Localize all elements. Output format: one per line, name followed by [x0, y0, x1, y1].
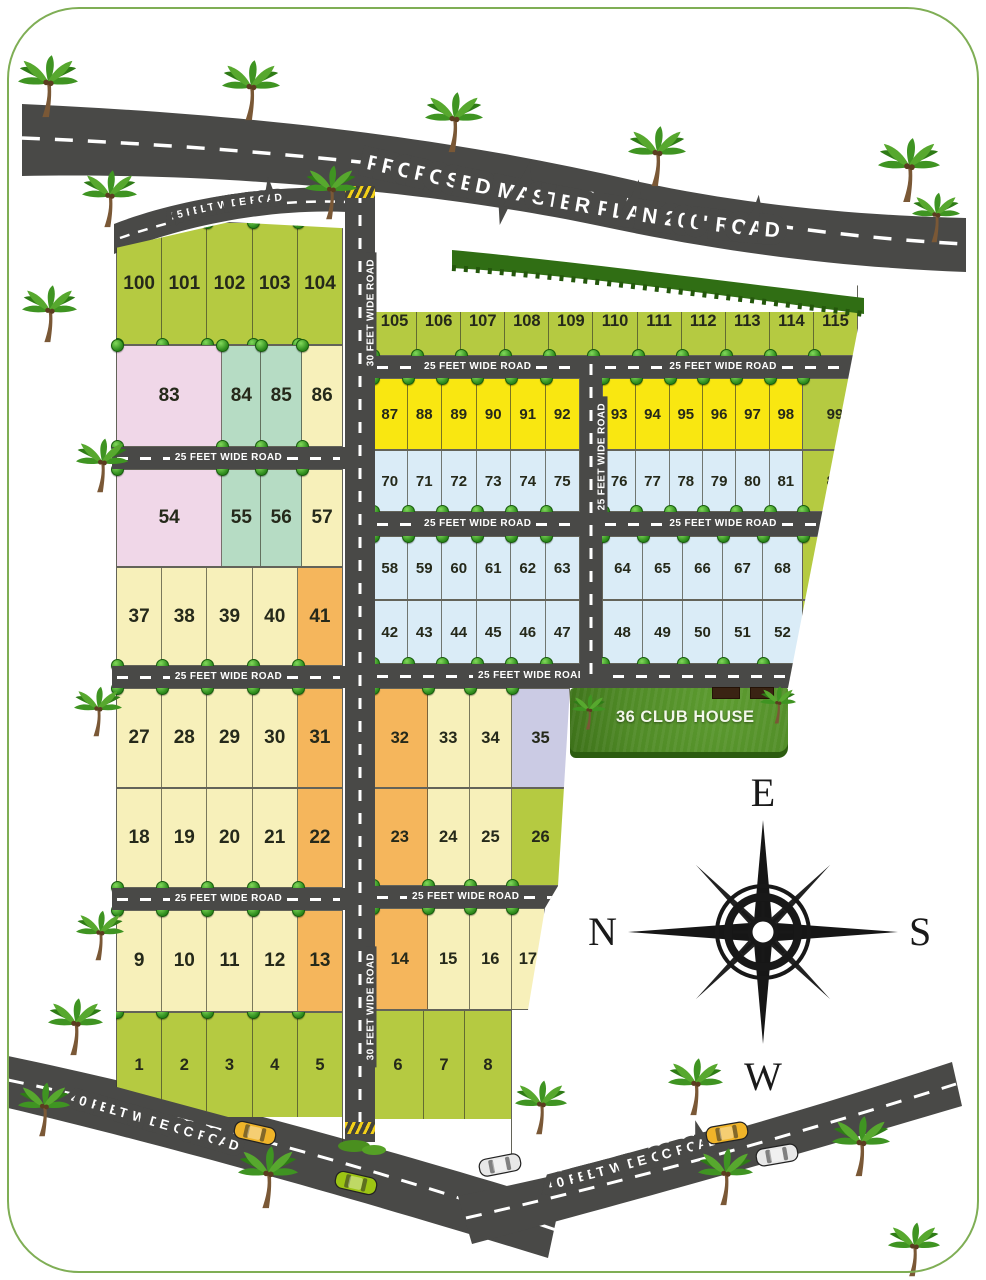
parked-vehicle [712, 687, 740, 699]
plot: 91 [511, 379, 546, 449]
plot-number: 59 [416, 560, 433, 577]
plot: 85 [261, 346, 302, 446]
plot-number: 68 [774, 560, 791, 577]
plot: 50 [683, 601, 723, 663]
plot-number: 80 [744, 473, 761, 490]
plot-number: 102 [214, 273, 246, 295]
plot-number: 27 [129, 727, 150, 749]
plot-number: 8 [483, 1056, 492, 1075]
road-dash [287, 676, 340, 679]
plot-row-100-104: 100101102103104 [116, 222, 343, 345]
plot: 98 [770, 379, 802, 449]
plot-number: 44 [450, 624, 467, 641]
plot: 109 [549, 312, 593, 355]
plot-number: 49 [654, 624, 671, 641]
road-25ft-left-3: 25 FEET WIDE ROAD [112, 888, 345, 910]
plot: 60 [442, 537, 477, 599]
plot-row-70-82: 707172737475 767778798081 82 [372, 450, 868, 512]
plot: 78 [670, 451, 703, 511]
plot: 7 [424, 1011, 465, 1119]
plot-number: 57 [312, 507, 333, 529]
plot: 108 [505, 312, 549, 355]
road-dash [377, 523, 419, 526]
plot-number: 58 [381, 560, 398, 577]
plot-number: 21 [264, 827, 285, 849]
plot-number: 91 [519, 406, 536, 423]
road-25ft-right-mid: 25 FEET WIDE ROAD 25 FEET WIDE ROAD [372, 512, 858, 536]
plot-number: 84 [231, 385, 252, 407]
plot: 79 [703, 451, 736, 511]
plot: 105 [373, 312, 417, 355]
plot: 106 [417, 312, 461, 355]
plot-number: 2 [180, 1056, 189, 1075]
plot: 47 [546, 601, 580, 663]
plot: 93 [603, 379, 636, 449]
plot-number: 103 [259, 273, 291, 295]
plot-number: 87 [381, 406, 398, 423]
plot-row-14-17: 14151617 [372, 908, 545, 1010]
plot-number: 25 [481, 828, 499, 847]
plot: 30 [253, 689, 298, 787]
plot-number: 94 [644, 406, 661, 423]
plot: 88 [408, 379, 443, 449]
plot-number: 24 [439, 828, 457, 847]
plot-number: 18 [129, 827, 150, 849]
plot-number: 5 [315, 1056, 324, 1075]
plot: 110 [593, 312, 637, 355]
plot: 81 [770, 451, 802, 511]
plot-number: 46 [519, 624, 536, 641]
plot-number: 67 [734, 560, 751, 577]
plot-number: 7 [439, 1056, 448, 1075]
plot: 5 [298, 1013, 342, 1117]
plot-number: 60 [450, 560, 467, 577]
plot-number: 106 [425, 312, 453, 331]
plot: 14 [373, 909, 428, 1009]
plot-number: 56 [271, 507, 292, 529]
plot-number: 6 [393, 1056, 402, 1075]
road-30ft-vertical: 30 FEET WIDE ROAD 30 FEET WIDE ROAD [345, 184, 375, 1142]
plot: 27 [117, 689, 162, 787]
plot-number: 71 [416, 473, 433, 490]
road-end-hatch [345, 186, 375, 198]
plot-row-6-8: 678 [372, 1010, 512, 1158]
plot-number: 77 [644, 473, 661, 490]
plot-number: 37 [129, 606, 150, 628]
plot-number: 47 [554, 624, 571, 641]
plot-number: 93 [611, 406, 628, 423]
plot-number: 115 [822, 312, 849, 331]
plot-number: 111 [646, 312, 672, 331]
plot: 44 [442, 601, 477, 663]
plot: 77 [636, 451, 669, 511]
plot: 61 [477, 537, 512, 599]
plot-number: 28 [174, 727, 195, 749]
plot-number: 63 [554, 560, 571, 577]
plot-number: 90 [485, 406, 502, 423]
plot-number: 39 [219, 606, 240, 628]
plot-row-9-13: 910111213 [116, 910, 343, 1012]
plot-number: 86 [312, 385, 333, 407]
plot: 57 [302, 470, 342, 566]
plot: 59 [408, 537, 443, 599]
plot-number: 98 [777, 406, 794, 423]
plot-number: 52 [774, 624, 791, 641]
plot: 102 [207, 223, 252, 344]
road-25ft-left-1: 25 FEET WIDE ROAD [112, 447, 345, 469]
road-label: 25 FEET WIDE ROAD [597, 396, 608, 517]
plot-row-23-26: 23242526 [372, 788, 570, 886]
plot-row-83-86: 83848586 [116, 345, 343, 447]
plot: 45 [477, 601, 512, 663]
plot: 22 [298, 789, 342, 887]
plot-number: 48 [614, 624, 631, 641]
plot-number: 19 [174, 827, 195, 849]
road-label: 25 FEET WIDE ROAD [175, 672, 282, 682]
plot: 63 [546, 537, 580, 599]
plot: 23 [373, 789, 428, 885]
plot-number: 40 [264, 606, 285, 628]
road-label: 30 FEET WIDE ROAD [366, 946, 377, 1067]
plot-number: 35 [531, 729, 549, 748]
plot: 19 [162, 789, 207, 887]
plot: 111 [638, 312, 682, 355]
road-label: 25 FEET WIDE ROAD [424, 362, 531, 372]
plot: 96 [703, 379, 736, 449]
plot-number: 15 [439, 950, 457, 969]
plot: 51 [723, 601, 763, 663]
plot: 64 [603, 537, 643, 599]
plot: 25 [470, 789, 512, 885]
plot-number: 96 [711, 406, 728, 423]
road-dash [117, 457, 170, 460]
plot: 70 [373, 451, 408, 511]
plot-number: 55 [231, 507, 252, 529]
plot-number: 42 [381, 624, 398, 641]
plot: 9 [117, 911, 162, 1011]
plot-number: 108 [513, 312, 541, 331]
plot: 32 [373, 689, 428, 787]
road-dash [287, 457, 340, 460]
plot-number: 11 [219, 950, 239, 972]
plot-number: 3 [225, 1056, 234, 1075]
plot: 67 [723, 537, 763, 599]
plot: 56 [261, 470, 302, 566]
plot-number: 79 [711, 473, 728, 490]
plot-number: 64 [614, 560, 631, 577]
plot-number: 14 [391, 950, 409, 969]
plot: 39 [207, 568, 252, 665]
plot-number: 23 [391, 828, 409, 847]
plot-number: 1 [135, 1056, 144, 1075]
plot-number: 4 [270, 1056, 279, 1075]
plot: 49 [643, 601, 683, 663]
road-25ft-left-2: 25 FEET WIDE ROAD [112, 666, 345, 688]
plot-row-32-35: 32333435 [372, 688, 570, 788]
plot-number: 31 [309, 727, 330, 749]
road-label: 25 FEET WIDE ROAD [669, 362, 776, 372]
plot: 18 [117, 789, 162, 887]
plot-number: 75 [554, 473, 571, 490]
plot-number: 70 [381, 473, 398, 490]
plot: 58 [373, 537, 408, 599]
plot: 48 [603, 601, 643, 663]
site-layout-map: PROPOSED MASTER PLAN 200' ROAD 25 FEET W… [0, 0, 986, 1280]
road-25ft-right-top: 25 FEET WIDE ROAD 25 FEET WIDE ROAD [372, 356, 858, 378]
plot-number: 78 [677, 473, 694, 490]
plot: 13 [298, 911, 342, 1011]
plot-number: 45 [485, 624, 502, 641]
plot-number: 26 [531, 828, 549, 847]
plot: 20 [207, 789, 252, 887]
plot: 41 [298, 568, 342, 665]
plot: 89 [442, 379, 477, 449]
plot-number: 89 [450, 406, 467, 423]
plot-number: 34 [481, 729, 499, 748]
plot: 33 [428, 689, 470, 787]
plot-number: 10 [174, 950, 195, 972]
plot-row-18-22: 1819202122 [116, 788, 343, 888]
plot-number: 72 [450, 473, 467, 490]
road-25ft-vertical: 25 FEET WIDE ROAD [580, 356, 602, 688]
parked-vehicle [750, 687, 774, 699]
plot: 65 [643, 537, 683, 599]
plot: 28 [162, 689, 207, 787]
plot-number: 81 [777, 473, 794, 490]
road-end-hatch [345, 1122, 375, 1134]
club-house: 36 CLUB HOUSE [570, 688, 788, 758]
plot-number: 50 [694, 624, 711, 641]
road-label: 25 FEET WIDE ROAD [412, 892, 519, 902]
plot: 46 [511, 601, 546, 663]
plot: 62 [511, 537, 546, 599]
plot-row-87-99: 878889909192 939495969798 99 [372, 378, 868, 450]
plot-number: 12 [264, 950, 285, 972]
plot-number: 107 [469, 312, 497, 331]
plot: 40 [253, 568, 298, 665]
plot-number: 13 [309, 950, 330, 972]
road-dash [117, 676, 170, 679]
plot: 86 [302, 346, 342, 446]
plot-number: 9 [134, 950, 145, 972]
plot-number: 32 [391, 729, 409, 748]
plot: 55 [222, 470, 261, 566]
plot: 72 [442, 451, 477, 511]
plot: 54 [117, 470, 222, 566]
plot: 34 [470, 689, 512, 787]
plot-row-54-57: 54555657 [116, 469, 343, 567]
plot-number: 110 [602, 312, 629, 331]
plot-number: 43 [416, 624, 433, 641]
plot-row-27-31: 2728293031 [116, 688, 343, 788]
plot-number: 88 [416, 406, 433, 423]
plot: 6 [373, 1011, 424, 1119]
plot: 107 [461, 312, 505, 355]
plot: 95 [670, 379, 703, 449]
plot: 29 [207, 689, 252, 787]
road-label: 25 FEET WIDE ROAD [424, 519, 531, 529]
plot-number: 54 [159, 507, 180, 529]
plot: 31 [298, 689, 342, 787]
plot-number: 83 [159, 385, 180, 407]
plot-number: 22 [309, 827, 330, 849]
plot: 21 [253, 789, 298, 887]
plot-number: 66 [694, 560, 711, 577]
plot: 83 [117, 346, 222, 446]
road-label: 25 FEET WIDE ROAD [175, 894, 282, 904]
road-dash [590, 675, 807, 678]
plot-number: 114 [778, 312, 805, 331]
road-label: 25 FEET WIDE ROAD [478, 671, 585, 681]
road-dash [377, 366, 419, 369]
plot-number: 74 [519, 473, 536, 490]
plot: 37 [117, 568, 162, 665]
plot: 71 [408, 451, 443, 511]
plot-number: 20 [219, 827, 240, 849]
road-25ft-lower: 25 FEET WIDE ROAD [372, 886, 560, 908]
plot: 84 [222, 346, 261, 446]
plot: 113 [726, 312, 770, 355]
club-house-label: 36 CLUB HOUSE [616, 708, 755, 727]
road-dash [782, 366, 853, 369]
plot-number: 62 [519, 560, 536, 577]
plot: 11 [207, 911, 252, 1011]
plot-number: 30 [264, 727, 285, 749]
plot-number: 33 [439, 729, 457, 748]
plot: 35 [512, 689, 569, 787]
plot: 114 [770, 312, 814, 355]
plot: 104 [298, 223, 342, 344]
plot-number: 113 [734, 312, 761, 331]
plot-number: 51 [734, 624, 751, 641]
road-dash [117, 898, 170, 901]
plot-number: 101 [168, 273, 200, 295]
road-label: 25 FEET WIDE ROAD [175, 453, 282, 463]
road-dash [287, 898, 340, 901]
plot: 74 [511, 451, 546, 511]
cc-road-right [458, 1062, 962, 1244]
plot-row-42-53: 424344454647 4849505152 53 [372, 600, 868, 664]
plot-number: 100 [123, 273, 155, 295]
plot: 80 [736, 451, 769, 511]
plot-number: 105 [381, 312, 409, 331]
road-dash [377, 675, 473, 678]
plot-number: 97 [744, 406, 761, 423]
plot: 94 [636, 379, 669, 449]
plot-number: 92 [554, 406, 571, 423]
plot: 73 [477, 451, 512, 511]
plot-row-37-41: 3738394041 [116, 567, 343, 666]
plot-number: 112 [690, 312, 717, 331]
plot-number: 95 [677, 406, 694, 423]
plot: 90 [477, 379, 512, 449]
plot: 92 [546, 379, 580, 449]
road-dash [359, 192, 362, 1134]
plot-number: 16 [481, 950, 499, 969]
plot: 97 [736, 379, 769, 449]
plot: 24 [428, 789, 470, 885]
plot: 4 [253, 1013, 298, 1117]
plot: 8 [465, 1011, 511, 1119]
plot-number: 17 [519, 950, 537, 969]
plot: 10 [162, 911, 207, 1011]
plot: 66 [683, 537, 723, 599]
plot-number: 41 [309, 606, 330, 628]
plot-number: 73 [485, 473, 502, 490]
plot-number: 65 [654, 560, 671, 577]
plot-row-58-69: 585960616263 6465666768 69 [372, 536, 868, 600]
plot: 75 [546, 451, 580, 511]
plot: 38 [162, 568, 207, 665]
plot-number: 29 [219, 727, 240, 749]
plot: 43 [408, 601, 443, 663]
plot-number: 104 [304, 273, 336, 295]
plot: 3 [207, 1013, 252, 1117]
plot-number: 38 [174, 606, 195, 628]
plot: 12 [253, 911, 298, 1011]
plot: 15 [428, 909, 470, 1009]
road-dash [524, 896, 555, 899]
plot: 87 [373, 379, 408, 449]
road-label: 30 FEET WIDE ROAD [366, 252, 377, 373]
plot: 68 [763, 537, 802, 599]
plot-number: 61 [485, 560, 502, 577]
plot-number: 85 [271, 385, 292, 407]
plot: 42 [373, 601, 408, 663]
plot-number: 76 [611, 473, 628, 490]
road-label: 25 FEET WIDE ROAD [669, 519, 776, 529]
plot: 76 [603, 451, 636, 511]
road-dash [377, 896, 407, 899]
plot: 115 [814, 312, 857, 355]
plot: 101 [162, 223, 207, 344]
plot: 112 [682, 312, 726, 355]
plot: 103 [253, 223, 298, 344]
plot: 16 [470, 909, 512, 1009]
road-dash [590, 364, 593, 680]
plot-number: 109 [557, 312, 585, 331]
